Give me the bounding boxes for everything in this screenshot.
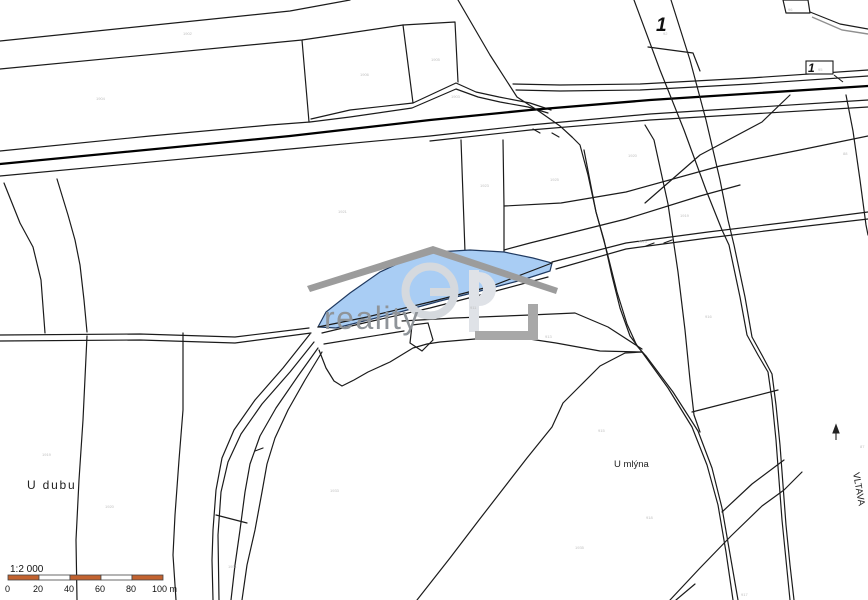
svg-text:U dubu: U dubu [27,478,77,492]
svg-text:1905: 1905 [431,57,441,62]
svg-text:1904: 1904 [96,96,106,101]
svg-text:1919: 1919 [42,452,52,457]
svg-text:918: 918 [646,515,653,520]
svg-text:1903: 1903 [451,94,461,99]
svg-text:1921: 1921 [338,209,348,214]
svg-text:80: 80 [126,584,136,594]
svg-text:1902: 1902 [183,31,193,36]
svg-text:U mlýna: U mlýna [614,459,650,470]
svg-text:911: 911 [470,305,477,310]
svg-text:1923: 1923 [480,183,490,188]
svg-text:2075: 2075 [638,239,648,244]
svg-text:20: 20 [33,584,43,594]
svg-text:1920: 1920 [628,153,638,158]
svg-text:1933: 1933 [330,488,340,493]
svg-text:1906: 1906 [360,72,370,77]
svg-text:915: 915 [598,428,605,433]
svg-text:917: 917 [741,592,748,597]
svg-text:92: 92 [663,31,668,36]
svg-text:1919: 1919 [680,213,690,218]
svg-text:1925: 1925 [550,177,560,182]
svg-text:1935: 1935 [575,545,585,550]
svg-text:1920: 1920 [105,504,115,509]
svg-text:95: 95 [818,67,823,72]
svg-text:1931: 1931 [228,564,238,569]
svg-text:916: 916 [705,314,712,319]
svg-text:40: 40 [64,584,74,594]
svg-text:913: 913 [545,334,552,339]
svg-text:88: 88 [843,151,848,156]
svg-text:60: 60 [95,584,105,594]
svg-text:1: 1 [808,61,815,75]
svg-text:reality: reality [324,300,420,336]
svg-text:100 m: 100 m [152,584,177,594]
svg-text:0: 0 [5,584,10,594]
svg-text:87: 87 [860,444,865,449]
svg-text:1:2 000: 1:2 000 [10,564,44,575]
svg-text:96: 96 [788,7,793,12]
